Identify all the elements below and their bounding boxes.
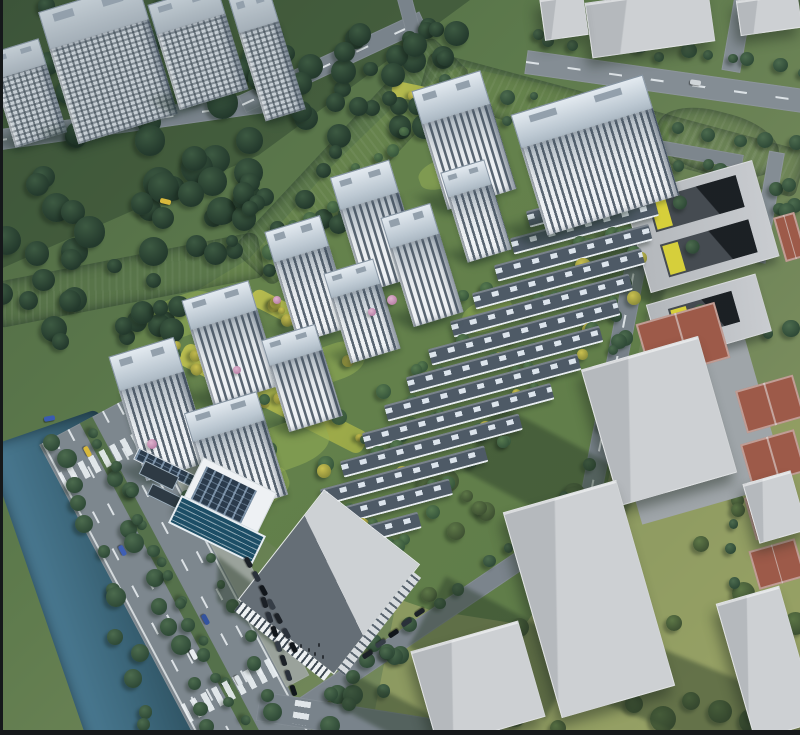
tree-canopy	[693, 536, 709, 552]
tree-canopy	[193, 702, 207, 716]
roof-unit	[224, 289, 239, 299]
tree-canopy	[349, 97, 367, 115]
massing-block	[736, 0, 800, 36]
tree-canopy	[725, 543, 736, 554]
tree-canopy	[331, 59, 356, 84]
tree-canopy	[26, 173, 49, 196]
flowering-tree	[233, 366, 241, 374]
pedestrian	[314, 652, 316, 656]
tree-canopy	[327, 124, 351, 148]
roof-unit	[413, 211, 424, 220]
tree-canopy	[52, 333, 68, 349]
tree-canopy	[139, 705, 152, 718]
tree-canopy	[577, 349, 588, 360]
tree-canopy	[59, 290, 81, 312]
tree-canopy	[210, 673, 221, 684]
tree-canopy	[740, 52, 754, 66]
tree-canopy	[461, 490, 474, 503]
median-tree	[197, 634, 211, 648]
median-tree	[86, 427, 100, 441]
tree-canopy	[153, 300, 169, 316]
roof-unit	[150, 346, 165, 357]
tree-canopy	[734, 135, 746, 147]
tree-canopy	[107, 259, 122, 274]
flowering-tree	[147, 439, 157, 449]
tree-canopy	[773, 58, 788, 73]
aerial-rendering-residential-masterplan	[0, 0, 800, 735]
median-tree	[155, 556, 169, 570]
tree-canopy	[160, 618, 177, 635]
courtyard-tree	[684, 238, 701, 255]
pedestrian	[318, 643, 320, 647]
roof-unit	[422, 90, 437, 101]
roof-unit	[20, 46, 31, 54]
tree-canopy	[32, 269, 54, 291]
roof-unit	[594, 88, 622, 103]
pedestrian	[308, 648, 310, 652]
roof-unit	[273, 232, 286, 241]
tree-canopy	[789, 135, 800, 150]
roof-unit	[389, 218, 400, 227]
tree-canopy	[728, 54, 738, 64]
tree-canopy	[387, 144, 399, 156]
tree-canopy	[178, 181, 204, 207]
tree-canopy	[163, 570, 174, 581]
tree-canopy	[171, 635, 190, 654]
scene-layers	[0, 0, 800, 735]
tree-canopy	[175, 598, 186, 609]
sports-court	[748, 538, 800, 590]
tree-canopy	[567, 40, 578, 51]
tree-canopy	[204, 242, 227, 265]
roof-unit	[53, 8, 75, 21]
flowering-tree	[273, 296, 281, 304]
tree-canopy	[654, 52, 663, 61]
tree-canopy	[242, 201, 258, 217]
roof-unit	[456, 80, 471, 91]
roof-unit	[300, 223, 313, 232]
tree-canopy	[497, 436, 508, 447]
roof-unit	[158, 3, 173, 13]
tree-canopy	[124, 669, 142, 687]
tree-canopy	[295, 190, 315, 210]
tree-canopy	[326, 93, 345, 112]
tree-canopy	[236, 127, 263, 154]
roof-unit	[101, 0, 123, 7]
roof-unit	[448, 173, 458, 180]
roof-unit	[230, 400, 246, 410]
roof-unit	[235, 1, 245, 10]
tree-canopy	[447, 522, 465, 540]
tree-canopy	[70, 495, 86, 511]
tree-canopy	[139, 237, 168, 266]
tree-canopy	[146, 569, 164, 587]
tree-canopy	[74, 216, 106, 248]
tree-canopy	[188, 677, 201, 690]
tree-canopy	[429, 22, 443, 36]
tree-canopy	[126, 486, 137, 497]
tree-canopy	[666, 615, 682, 631]
flowering-tree	[387, 295, 397, 305]
tree-canopy	[608, 345, 618, 355]
roof-unit	[191, 0, 206, 3]
tree-canopy	[75, 515, 93, 533]
tree-canopy	[317, 464, 331, 478]
tree-canopy	[131, 192, 154, 215]
roof-unit	[355, 266, 366, 274]
pedestrian	[322, 655, 324, 659]
tree-canopy	[19, 291, 38, 310]
roof-unit	[192, 299, 207, 309]
tree-canopy	[376, 384, 391, 399]
crosswalk	[292, 700, 312, 726]
tree-canopy	[731, 503, 745, 517]
tree-canopy	[25, 241, 49, 265]
roof-unit	[270, 339, 282, 347]
tree-canopy	[146, 273, 161, 288]
tree-canopy	[729, 519, 738, 528]
tree-canopy	[627, 291, 640, 304]
roof-unit	[339, 177, 352, 187]
tree-canopy	[500, 90, 515, 105]
image-border-bottom	[0, 730, 800, 735]
tree-canopy	[444, 21, 469, 46]
tree-canopy	[57, 449, 76, 468]
roof-unit	[469, 166, 479, 173]
median-tree	[239, 713, 253, 727]
roof-unit	[295, 331, 307, 339]
tree-canopy	[673, 160, 685, 172]
image-border-left	[0, 0, 3, 735]
tree-canopy	[107, 471, 123, 487]
tree-canopy	[107, 629, 123, 645]
roof-unit	[529, 107, 557, 122]
roof-unit	[368, 168, 381, 178]
tree-canopy	[259, 394, 270, 405]
tree-canopy	[0, 226, 21, 255]
roof-unit	[195, 411, 211, 421]
tree-canopy	[152, 207, 174, 229]
flowering-tree	[368, 308, 376, 316]
roof-unit	[255, 0, 265, 4]
tree-canopy	[66, 477, 82, 493]
tree-canopy	[247, 656, 261, 670]
tree-canopy	[363, 62, 378, 77]
tree-canopy	[261, 689, 274, 702]
car	[44, 415, 56, 422]
tree-canopy	[115, 317, 132, 334]
tree-canopy	[349, 23, 371, 45]
residential-tower	[261, 324, 343, 432]
tree-canopy	[703, 50, 713, 60]
roof-unit	[331, 273, 342, 281]
roof-unit	[119, 356, 134, 367]
tree-canopy	[106, 587, 126, 607]
massing-block	[539, 0, 588, 41]
tree-canopy	[701, 128, 715, 142]
pedestrian	[300, 644, 302, 648]
tree-canopy	[426, 505, 440, 519]
massing-block	[742, 470, 800, 543]
tree-canopy	[131, 301, 154, 324]
tree-canopy	[151, 598, 168, 615]
tree-canopy	[263, 703, 282, 722]
tree-canopy	[245, 630, 257, 642]
tree-canopy	[729, 577, 741, 589]
tree-canopy	[181, 618, 194, 631]
tree-canopy	[437, 50, 453, 66]
